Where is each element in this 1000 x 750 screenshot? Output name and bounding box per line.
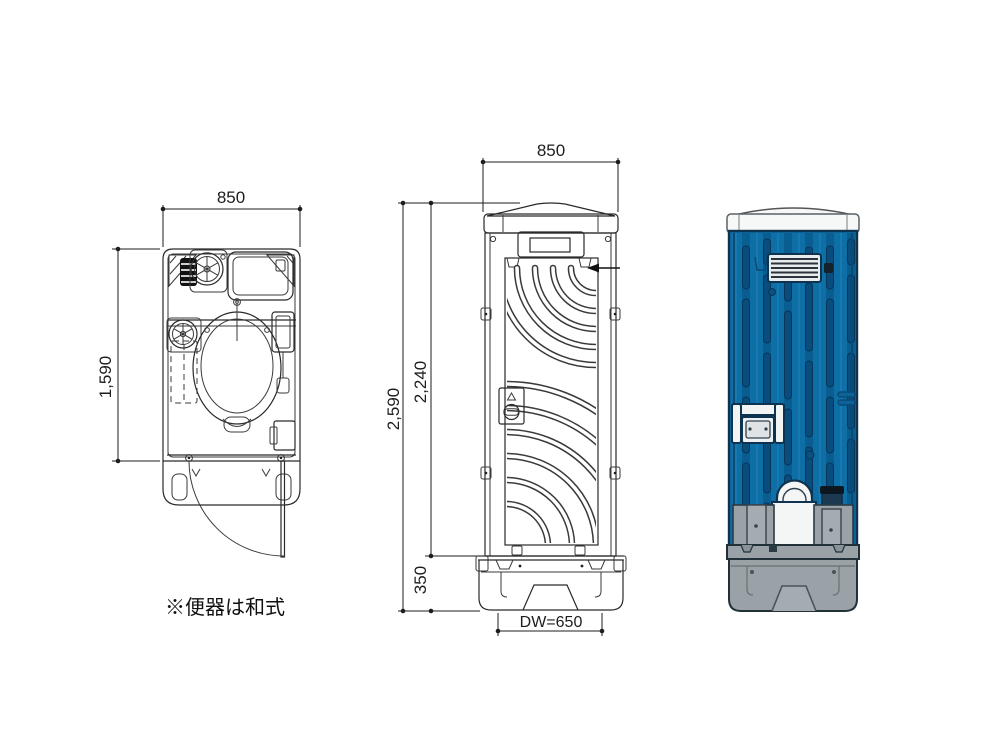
color-roof (727, 208, 859, 233)
door-width-label: DW=650 (520, 614, 583, 631)
latch-keeper (824, 263, 833, 273)
spec-drawing-sheet: 850 1,590 (0, 0, 1000, 750)
front-elevation: 850 2,590 2,240 350 (384, 141, 668, 636)
elev-door (499, 258, 668, 555)
elev-base (476, 556, 626, 610)
squat-toilet (193, 299, 281, 432)
plan-depth-dimension: 1,590 (96, 247, 160, 464)
plan-front-wall (163, 455, 300, 500)
plan-depth-label: 1,590 (96, 356, 115, 399)
vent-window (518, 232, 584, 257)
total-height-label: 2,590 (384, 388, 403, 431)
door-swing (189, 461, 285, 557)
elev-roof (484, 203, 618, 233)
cleaning-unit (272, 312, 294, 393)
plan-width-label: 850 (217, 188, 245, 207)
flush-tank (228, 252, 293, 300)
louver-vent (768, 254, 821, 282)
plan-note: ※便器は和式 (165, 596, 285, 619)
color-base (727, 545, 859, 611)
elev-width-label: 850 (537, 141, 565, 160)
elev-body (481, 232, 620, 556)
door-width-dimension: DW=650 (496, 613, 605, 636)
hinge-arrow (587, 264, 620, 273)
plan-width-dimension: 850 (161, 188, 303, 247)
body-height-label: 2,240 (411, 361, 430, 404)
color-door-handle (732, 404, 784, 443)
plan-machinery-area (167, 250, 296, 326)
front-color-view (727, 208, 859, 611)
arch-cover (772, 481, 816, 546)
base-height-label: 350 (411, 566, 430, 594)
drawing-svg: 850 1,590 (0, 0, 1000, 750)
plan-interior (167, 299, 295, 450)
plan-view: 850 1,590 (96, 188, 302, 619)
elev-width-dimension: 850 (481, 141, 621, 212)
paper-holder (270, 421, 295, 450)
